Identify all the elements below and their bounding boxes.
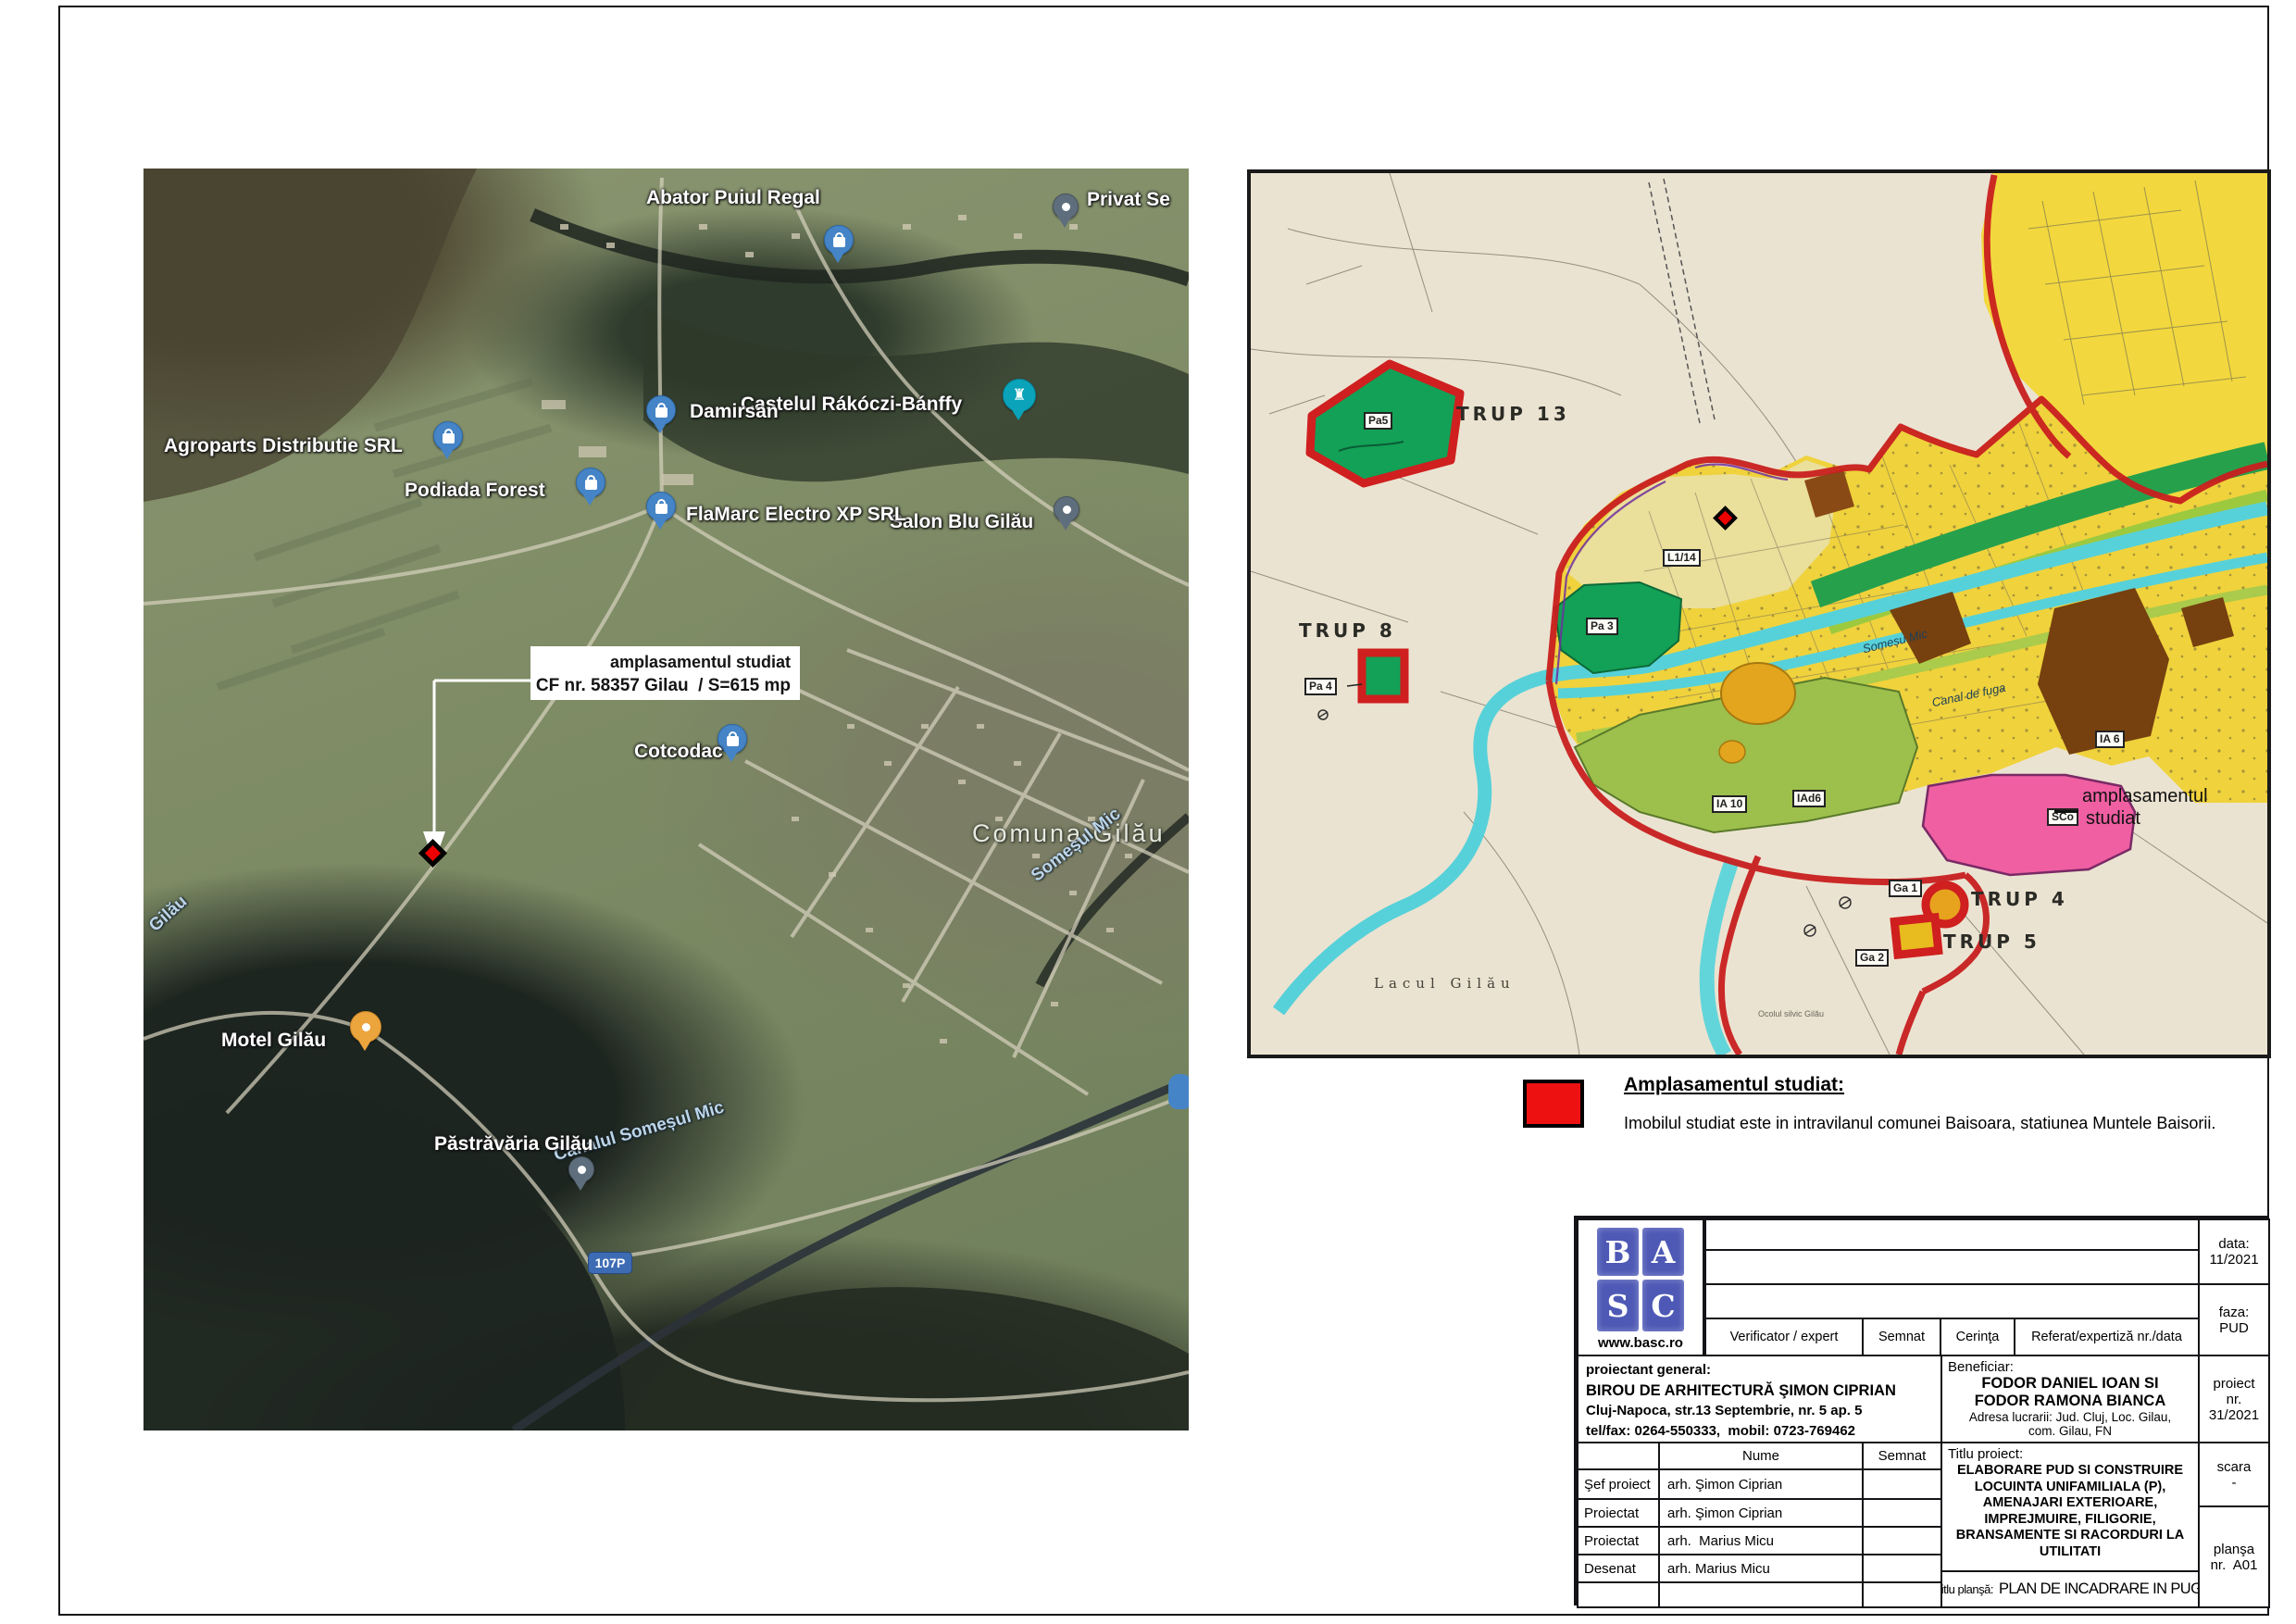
verif-header-cerinta: Cerinţa (1940, 1318, 2015, 1356)
dot-icon (1062, 203, 1070, 211)
annotation-line1: amplasamentul studiat (530, 651, 791, 674)
abator-shopping-pin (824, 225, 852, 253)
scara-value: - (2232, 1475, 2237, 1491)
podiada-shopping-pin (576, 468, 604, 495)
shopping-bag-icon (833, 237, 845, 247)
pug-zonebox-pa3: Pa 3 (1586, 618, 1618, 635)
data-cell: data: 11/2021 (2198, 1218, 2270, 1285)
titlu-proiect-line5: BRANSAMENTE SI RACORDURI LA (1956, 1528, 2185, 1544)
team-header-nume: Nume (1658, 1442, 1864, 1470)
site-annotation-box: amplasamentul studiat CF nr. 58357 Gilau… (530, 646, 800, 700)
shopping-bag-icon (655, 504, 668, 514)
team-header-role (1577, 1442, 1660, 1470)
map-label-privat: Privat Se (1087, 189, 1170, 211)
titlu-proiect-line1: ELABORARE PUD SI CONSTRUIRE (1957, 1463, 2183, 1480)
team-empty-role (1577, 1581, 1660, 1608)
map-label-motel: Motel Gilău (221, 1030, 326, 1052)
logo-website: www.basc.ro (1578, 1335, 1703, 1351)
pug-label-trup4: TRUP 4 (1971, 888, 2068, 910)
logo-tile-c: C (1642, 1280, 1684, 1331)
legend-swatch-red (1523, 1080, 1584, 1128)
titlu-proiect-line6: UTILITATI (2040, 1544, 2101, 1561)
pug-map-graphic (1251, 173, 2267, 1055)
agroparts-shopping-pin (433, 421, 461, 449)
plansa-cell: planşa nr. A01 (2198, 1505, 2270, 1608)
team-role-3: Desenat (1577, 1554, 1660, 1583)
pug-zonebox-pa5: Pa5 (1364, 412, 1392, 430)
pug-label-trup5: TRUP 5 (1943, 931, 2040, 953)
logo-tile-a: A (1642, 1228, 1684, 1276)
beneficiar-addr2: com. Gilau, FN (2028, 1424, 2112, 1438)
team-role-1: Proiectat (1577, 1498, 1660, 1528)
verif-header-semnat: Semnat (1862, 1318, 1941, 1356)
map-label-cotcodac: Cotcodac (634, 741, 723, 763)
beneficiar-label: Beneficiar: (1942, 1359, 2014, 1375)
scara-cell: scara - (2198, 1442, 2270, 1507)
pug-zonebox-iad6: IAd6 (1792, 790, 1826, 807)
beneficiar-name2: FODOR RAMONA BIANCA (1975, 1393, 2166, 1410)
zone-gold (1721, 663, 1795, 724)
logo-cell: B A S C www.basc.ro (1577, 1218, 1704, 1356)
verif-header-referat: Referat/expertiză nr./data (2014, 1318, 2200, 1356)
verif-empty-row2 (1704, 1249, 2200, 1285)
privat-pin (1053, 194, 1077, 218)
proiectant-cell: proiectant general: BIROU DE ARHITECTURĂ… (1577, 1355, 1942, 1443)
dot-icon (578, 1166, 586, 1174)
faza-label: faza: (2219, 1305, 2250, 1320)
titlu-plansa-label: titlu planşă: (1940, 1582, 1993, 1596)
river-top (532, 215, 1189, 280)
titlu-proiect-line3: AMENAJARI EXTERIOARE, (1983, 1495, 2158, 1512)
verif-header-verificator: Verificator / expert (1704, 1318, 1864, 1356)
data-label: data: (2218, 1236, 2249, 1252)
proiectant-address: Cluj-Napoca, str.13 Septembrie, nr. 5 ap… (1586, 1401, 1896, 1421)
proiectant-name: BIROU DE ARHITECTURĂ ŞIMON CIPRIAN (1586, 1380, 1896, 1401)
map-label-flamarc: FlaMarc Electro XP SRL (686, 504, 906, 526)
pug-label-lacul-gilau: Lacul Gilău (1374, 975, 1516, 992)
beneficiar-name1: FODOR DANIEL IOAN SI (1981, 1375, 2158, 1393)
castle-pin: ♜ (1003, 379, 1034, 410)
team-sign-2 (1862, 1526, 1942, 1555)
pug-label-studiat: studiat (2086, 808, 2140, 829)
pug-map: TRUP 13 TRUP 8 TRUP 4 TRUP 5 Pa5 Pa 4 Pa… (1247, 169, 2271, 1058)
proiect-nr-label: nr. (2227, 1392, 2242, 1407)
titlu-proiect-line2: LOCUINTA UNIFAMILIALA (P), (1975, 1480, 2165, 1496)
shopping-bag-icon (727, 736, 739, 746)
map-label-salon: Salon Blu Gilău (890, 511, 1033, 533)
pug-zonebox-pa4: Pa 4 (1304, 678, 1337, 695)
pug-site-leader-dash (2054, 810, 2078, 813)
pug-label-trup8: TRUP 8 (1299, 619, 1396, 642)
motel-restaurant-pin (350, 1011, 380, 1041)
verif-empty-row3 (1704, 1283, 2200, 1319)
proiect-value: 31/2021 (2209, 1407, 2259, 1423)
map-label-abator: Abator Puiul Regal (646, 187, 820, 209)
map-label-pastravaria: Păstrăvăria Gilău (434, 1133, 593, 1156)
map-label-podiada: Podiada Forest (405, 480, 545, 502)
faza-value: PUD (2219, 1320, 2249, 1336)
site-marker-diamond (421, 842, 443, 864)
basc-logo-icon: B A S C (1597, 1228, 1688, 1331)
proiect-nr-cell: proiect nr. 31/2021 (2198, 1355, 2270, 1443)
plansa-label: planşa (2214, 1542, 2254, 1557)
salon-pin (1054, 496, 1078, 520)
pug-zonebox-ia6: IA 6 (2095, 731, 2125, 748)
team-name-3: arh. Marius Micu (1658, 1554, 1864, 1583)
beneficiar-addr1: Adresa lucrarii: Jud. Cluj, Loc. Gilau, (1969, 1410, 2171, 1424)
titlu-plansa-value: PLAN DE INCADRARE IN PUG (1999, 1580, 2200, 1598)
logo-tile-b: B (1597, 1228, 1639, 1276)
satellite-map: ♜ Abator Puiul Regal Privat Se Castelul … (143, 169, 1189, 1430)
pug-zonebox-ia10: IA 10 (1712, 795, 1747, 813)
castle-icon: ♜ (1012, 388, 1026, 404)
team-role-0: Şef proiect (1577, 1468, 1660, 1500)
team-empty-sign (1862, 1581, 1942, 1608)
map-label-damirsan: Damirsan (690, 401, 779, 423)
team-header-semnat: Semnat (1862, 1442, 1942, 1470)
pug-zonebox-ga1: Ga 1 (1889, 880, 1922, 897)
dot-icon (362, 1023, 370, 1031)
shopping-bag-icon (443, 433, 455, 443)
team-empty-name (1658, 1581, 1864, 1608)
annotation-line2: CF nr. 58357 Gilau / S=615 mp (530, 674, 791, 697)
scara-label: scara (2217, 1459, 2252, 1475)
plansa-value: nr. A01 (2211, 1557, 2258, 1573)
logo-tile-s: S (1597, 1280, 1639, 1331)
team-sign-3 (1862, 1554, 1942, 1583)
titlu-proiect-cell: Titlu proiect: ELABORARE PUD SI CONSTRUI… (1940, 1442, 2200, 1572)
team-sign-1 (1862, 1498, 1942, 1528)
team-name-1: arh. Şimon Ciprian (1658, 1498, 1864, 1528)
faza-cell: faza: PUD (2198, 1283, 2270, 1356)
team-sign-0 (1862, 1468, 1942, 1500)
data-value: 11/2021 (2209, 1252, 2258, 1268)
proiect-label: proiect (2213, 1376, 2254, 1392)
team-name-2: arh. Marius Micu (1658, 1526, 1864, 1555)
road-shield-107p: 107P (588, 1252, 632, 1274)
shopping-bag-icon (655, 407, 668, 418)
trup5-marker (1894, 918, 1939, 955)
team-role-2: Proiectat (1577, 1526, 1660, 1555)
titlu-proiect-line4: IMPREJMUIRE, FILIGORIE, (1984, 1512, 2155, 1529)
pug-label-trup13: TRUP 13 (1456, 403, 1570, 425)
dot-icon (1063, 506, 1071, 514)
map-label-agroparts: Agroparts Distributie SRL (164, 435, 403, 457)
proiectant-label: proiectant general: (1586, 1360, 1896, 1380)
satellite-terrain-graphic (143, 169, 1189, 1430)
team-name-0: arh. Şimon Ciprian (1658, 1468, 1864, 1500)
shopping-bag-icon (585, 480, 597, 490)
pug-zonebox-ga2: Ga 2 (1855, 949, 1889, 967)
pug-label-ocolul-silvic: Ocolul silvic Gilău (1758, 1009, 1824, 1018)
pug-zonebox-l114: L1/14 (1663, 549, 1701, 567)
titlu-plansa-cell: titlu planşă: PLAN DE INCADRARE IN PUG (1940, 1570, 2200, 1608)
pug-label-amplasamentul: amplasamentul (2082, 786, 2208, 806)
legend-heading: Amplasamentul studiat: (1624, 1074, 1844, 1096)
verif-empty-row1 (1704, 1218, 2200, 1251)
title-block: B A S C www.basc.ro Verificator / expert… (1574, 1216, 2267, 1605)
beneficiar-cell: Beneficiar: FODOR DANIEL IOAN SI FODOR R… (1940, 1355, 2200, 1443)
legend-body: Imobilul studiat este in intravilanul co… (1624, 1111, 2240, 1136)
damirsan-shopping-pin (646, 395, 674, 423)
edge-clipped-pin (1168, 1074, 1189, 1109)
titlu-proiect-label: Titlu proiect: (1942, 1443, 2023, 1463)
flamarc-shopping-pin (646, 492, 674, 519)
proiectant-phone: tel/fax: 0264-550333, mobil: 0723-769462 (1586, 1421, 1896, 1442)
